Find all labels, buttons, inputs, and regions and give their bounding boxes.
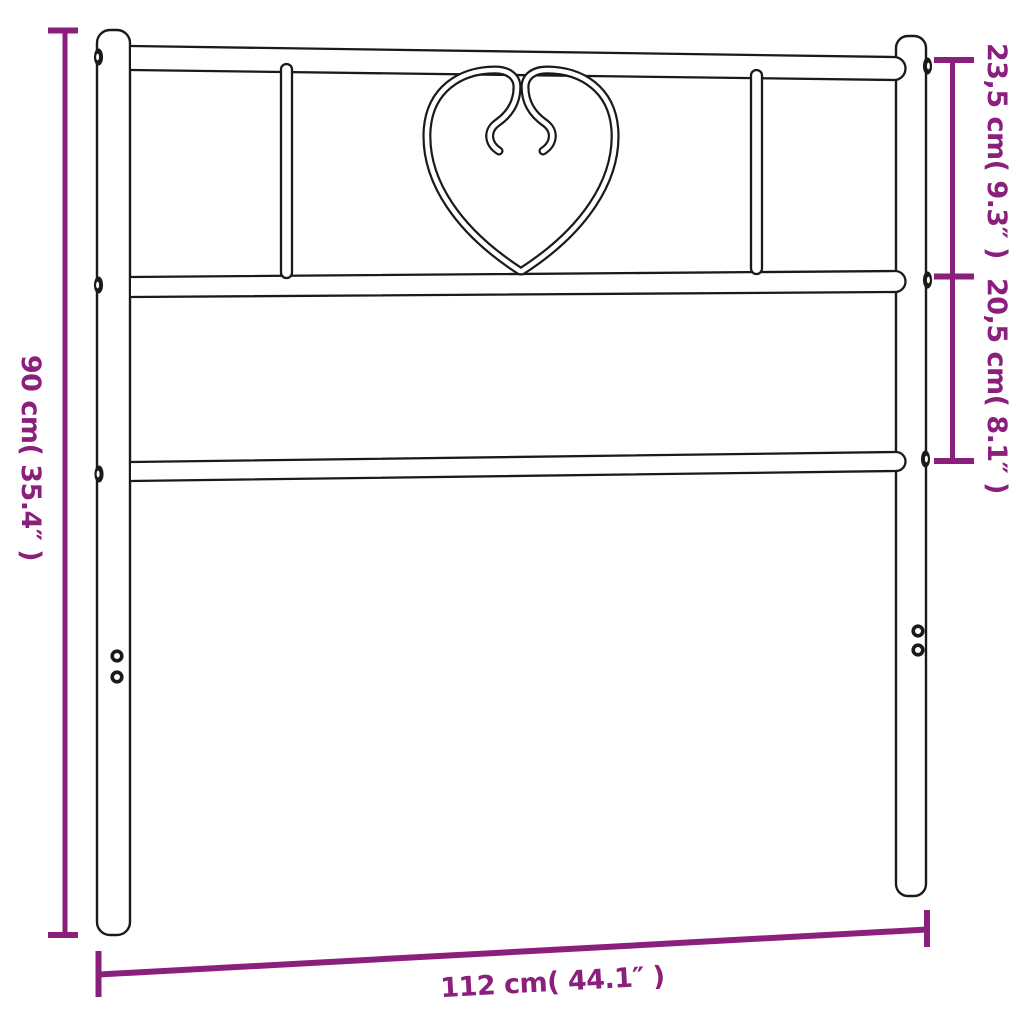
dimension-total-height: 90 cm( 35.4″ )	[15, 28, 78, 939]
dimension-cap-middle	[934, 274, 974, 280]
dimension-cap-top	[48, 28, 78, 34]
top-rail	[131, 46, 906, 80]
left-post	[97, 30, 130, 935]
product-dimension-diagram: 90 cm( 35.4″ ) 23,5 cm( 9.3″ ) 20,5 cm( …	[0, 0, 1024, 1024]
dimension-upper-section: 23,5 cm( 9.3″ )	[934, 43, 1012, 277]
headboard-drawing	[94, 30, 932, 935]
dimension-line	[63, 30, 68, 935]
dimension-label-total-height: 90 cm( 35.4″ )	[15, 355, 46, 561]
dimension-cap-right	[924, 910, 930, 947]
dimension-middle-section: 20,5 cm( 8.1″ )	[934, 274, 1012, 495]
lower-rail	[131, 452, 906, 481]
dimension-label-total-width: 112 cm( 44.1″ )	[440, 961, 666, 1004]
dimension-cap-top	[934, 57, 974, 63]
headboard-diagram-canvas: 90 cm( 35.4″ ) 23,5 cm( 9.3″ ) 20,5 cm( …	[0, 0, 1024, 1024]
dimension-line	[950, 60, 955, 277]
right-divider-bar	[751, 70, 762, 274]
heart-ornament	[427, 70, 615, 271]
dimension-label-upper-section: 23,5 cm( 9.3″ )	[981, 43, 1012, 259]
dimension-cap-bottom	[48, 932, 78, 938]
dimension-cap-left	[96, 951, 102, 997]
left-divider-bar	[281, 64, 292, 278]
dimension-cap-bottom	[934, 458, 974, 464]
dimension-label-middle-section: 20,5 cm( 8.1″ )	[981, 278, 1012, 494]
dimension-total-width: 112 cm( 44.1″ )	[96, 910, 931, 1004]
dimension-line	[950, 277, 955, 462]
